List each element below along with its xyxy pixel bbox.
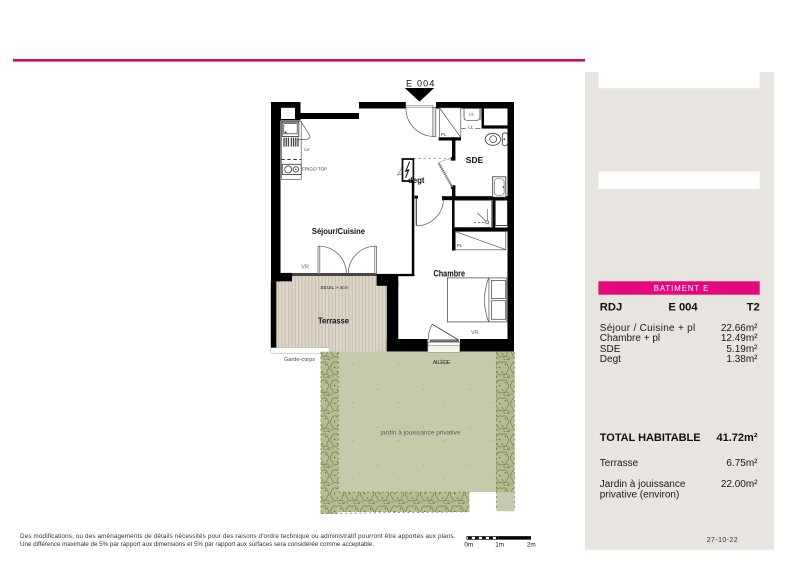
svg-text:RDJ: RDJ [600,302,622,314]
svg-text:Des modifications, ou des amén: Des modifications, ou des aménagements d… [20,533,456,540]
svg-text:VR: VR [301,264,309,270]
svg-text:LS: LS [469,113,474,117]
svg-text:22.66m²: 22.66m² [721,323,758,334]
svg-text:Séjour / Cuisine + pl: Séjour / Cuisine + pl [600,323,695,334]
svg-text:27-10-22: 27-10-22 [707,537,738,544]
svg-text:Jardin à jouissance: Jardin à jouissance [600,479,686,490]
svg-text:22.00m²: 22.00m² [721,479,758,490]
svg-text:6.75m²: 6.75m² [726,458,758,469]
svg-text:Garde-corps: Garde-corps [284,357,315,363]
svg-text:E 004: E 004 [406,78,435,88]
svg-text:2m: 2m [527,541,536,548]
svg-text:SDE: SDE [466,155,484,165]
svg-text:5.19m²: 5.19m² [726,344,758,355]
svg-text:SDE: SDE [600,344,621,355]
svg-text:PL: PL [457,243,463,248]
svg-text:BATIMENT E: BATIMENT E [654,284,710,293]
svg-text:TOTAL HABITABLE: TOTAL HABITABLE [600,432,701,444]
svg-text:LV: LV [304,147,310,152]
svg-text:VR: VR [471,330,479,336]
svg-text:1m: 1m [495,541,504,548]
svg-text:FRIGO TOP: FRIGO TOP [302,166,327,171]
svg-text:Une différence maximale de 5%: Une différence maximale de 5% par rappor… [20,541,374,548]
svg-text:Terrasse: Terrasse [318,316,349,326]
svg-text:SEUIL > 4cm: SEUIL > 4cm [320,285,348,291]
svg-text:E 004: E 004 [668,302,698,314]
svg-text:privative (environ): privative (environ) [600,490,679,501]
svg-text:jardin à jouissance privative: jardin à jouissance privative [379,430,461,437]
svg-text:PL: PL [441,132,447,137]
svg-text:1.38m²: 1.38m² [726,354,758,365]
svg-text:0m: 0m [464,541,473,548]
svg-text:Degt: Degt [600,354,621,365]
svg-text:12.49m²: 12.49m² [721,333,758,344]
svg-text:Chambre + pl: Chambre + pl [600,333,660,344]
svg-text:Terrasse: Terrasse [600,458,639,469]
svg-text:degt: degt [408,176,425,185]
svg-text:41.72m²: 41.72m² [717,432,758,444]
svg-text:ALLÈGE: ALLÈGE [433,359,451,366]
svg-text:T2: T2 [747,302,760,314]
svg-text:Chambre: Chambre [434,269,466,279]
svg-text:LL: LL [468,124,474,129]
svg-text:Séjour/Cuisine: Séjour/Cuisine [312,226,365,236]
